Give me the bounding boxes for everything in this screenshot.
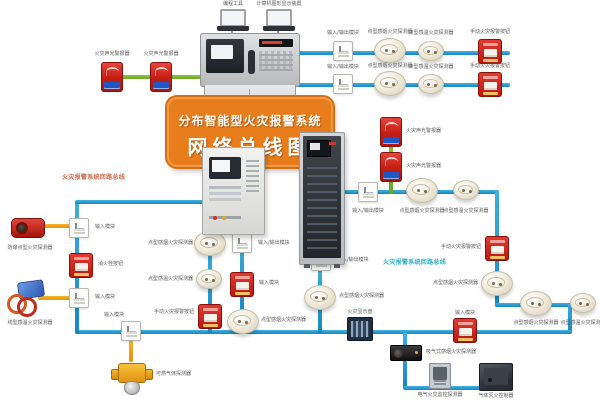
console-led-display xyxy=(259,39,293,47)
smoke-detector-bus-b-label: 点型感烟火灾探测器 xyxy=(513,321,558,327)
heat-detector-bus-a-icon xyxy=(453,180,479,200)
heat-detector-row2-icon xyxy=(418,74,444,94)
io-module-bus-a-icon xyxy=(358,182,378,202)
input-module-gas-branch-label: 输入模块 xyxy=(104,313,124,319)
sound-light-alarm-3-label: 火灾声光警报器 xyxy=(406,129,441,135)
heat-detector-bus-b-label: 点型感温火灾探测器 xyxy=(560,321,600,327)
sound-light-alarm-4-label: 火灾声光警报器 xyxy=(406,164,441,170)
smoke-detector-row2-label: 点型感烟火灾探测器 xyxy=(367,64,412,70)
manual-call-point-left-drop-icon xyxy=(198,304,222,329)
input-module-gas-branch-icon xyxy=(121,321,141,341)
manual-call-point-right-icon xyxy=(485,236,509,261)
smoke-detector-row1-label: 点型感烟火灾探测器 xyxy=(367,30,412,36)
io-module-row2-icon xyxy=(333,74,353,94)
panel-keypad xyxy=(246,158,259,192)
hydrant-button-label: 消火栓按钮 xyxy=(98,262,123,268)
smoke-detector-cabinet-drop-label: 点型感烟火灾探测器 xyxy=(339,294,384,300)
smoke-detector-right-drop-label: 点型感烟火灾探测器 xyxy=(261,318,306,324)
input-module-left-2-icon xyxy=(69,288,89,308)
smoke-detector-right-label: 点型感烟火灾探测器 xyxy=(433,281,478,287)
heat-detector-bus-a-label: 点型感温火灾探测器 xyxy=(443,209,488,215)
combustible-gas-detector-label: 可燃气体探测器 xyxy=(156,372,191,378)
linear-heat-detector-icon xyxy=(6,281,46,315)
heat-detector-row1-icon xyxy=(418,41,444,61)
io-module-right-drop-icon xyxy=(232,233,252,253)
hydrant-button-icon xyxy=(69,253,93,278)
manual-call-point-left-drop-label: 手动火灾报警按钮 xyxy=(154,310,194,316)
smoke-detector-bus-a-label: 点型感烟火灾探测器 xyxy=(399,209,444,215)
right-loop-bus-label: 火灾报警系统回路总线 xyxy=(383,257,446,266)
cabinet-slots xyxy=(307,161,337,249)
system-title: 分布智能型火灾报警系统 xyxy=(169,112,331,129)
aspirating-smoke-detector-icon xyxy=(390,345,422,361)
smoke-detector-right-icon xyxy=(481,271,513,296)
sound-light-alarm-4-icon xyxy=(380,152,402,182)
console-phone-handset xyxy=(248,50,255,74)
heat-detector-row2-label: 点型感温火灾探测器 xyxy=(408,65,453,71)
aspirating-smoke-detector-label: 吸气式感烟火灾探测器 xyxy=(426,350,476,356)
sound-light-alarm-3-icon xyxy=(380,117,402,147)
smoke-detector-right-drop-icon xyxy=(227,309,259,334)
io-module-row1-label: 输入/输出模块 xyxy=(327,31,359,37)
sound-light-alarm-2-label: 火灾声光警报器 xyxy=(143,52,178,58)
input-module-bottom-icon xyxy=(453,318,477,343)
programming-laptop-label: 编程工具 xyxy=(223,2,243,8)
console-screen xyxy=(206,39,244,73)
console-keypad xyxy=(259,51,293,71)
bus-line xyxy=(75,330,572,334)
combustible-gas-detector-icon xyxy=(111,357,151,393)
manual-call-point-right-label: 手动火灾报警按钮 xyxy=(441,245,481,251)
cabinet-screen xyxy=(307,140,331,157)
network-controller-cabinet xyxy=(299,132,345,265)
explosion-proof-detector-label: 防爆点型火灾探测器 xyxy=(7,246,52,252)
bus-line xyxy=(75,200,203,204)
input-module-right-drop-label: 输入模块 xyxy=(259,281,279,287)
cabinet-led xyxy=(329,142,336,145)
sound-light-alarm-1-icon xyxy=(101,62,123,92)
smoke-detector-row1-icon xyxy=(374,38,406,63)
io-module-row1-icon xyxy=(333,41,353,61)
fire-alarm-network-diagram: 分布智能型火灾报警系统 网络总线图 火灾报警系统回路总线 火灾报警系统回路总线 … xyxy=(0,0,600,400)
fire-display-panel-icon xyxy=(347,317,373,341)
manual-call-point-row1-label: 手动火灾报警按钮 xyxy=(470,30,510,36)
input-module-bottom-label: 输入模块 xyxy=(455,311,475,317)
cable-coil xyxy=(17,297,37,317)
manual-call-point-row2-icon xyxy=(478,72,502,97)
panel-indicators xyxy=(209,186,241,189)
gas-extinguishing-controller-label: 气体灭火控制器 xyxy=(478,394,513,400)
sound-light-alarm-1-label: 火灾声光警报器 xyxy=(94,52,129,58)
gas-detector-dome xyxy=(124,381,140,395)
manual-call-point-row1-icon xyxy=(478,39,502,64)
gas-extinguishing-controller-icon xyxy=(479,363,513,391)
smoke-detector-left-drop-label: 点型感烟火灾探测器 xyxy=(148,241,193,247)
fire-alarm-control-panel xyxy=(202,147,265,235)
graphics-display-laptop-icon xyxy=(266,9,292,27)
smoke-detector-cabinet-drop-icon xyxy=(304,285,336,310)
input-module-left-2-label: 输入模块 xyxy=(95,295,115,301)
electrical-fire-monitor-icon xyxy=(429,363,451,389)
electrical-fire-monitor-label: 电气火灾监控探测器 xyxy=(417,393,462,399)
input-module-left-1-icon xyxy=(69,218,89,238)
io-module-right-drop-label: 输入/输出模块 xyxy=(258,241,290,247)
heat-detector-bus-b-icon xyxy=(570,293,596,313)
smoke-detector-row2-icon xyxy=(374,71,406,96)
smoke-detector-bus-b-icon xyxy=(520,291,552,316)
explosion-proof-detector-icon xyxy=(9,212,47,240)
detector-branch-line xyxy=(44,224,70,228)
heat-detector-left-drop-label: 点型感温火灾探测器 xyxy=(148,277,193,283)
graphics-display-laptop-label: 计算机图形显示装置 xyxy=(256,2,301,8)
input-module-right-drop-icon xyxy=(230,272,254,297)
gas-detector-body xyxy=(118,363,146,383)
heat-detector-left-drop-icon xyxy=(196,269,222,289)
panel-screen xyxy=(209,157,241,179)
io-module-bus-a-label: 输入/输出模块 xyxy=(352,209,384,215)
smoke-detector-bus-a-icon xyxy=(406,178,438,203)
programming-laptop-icon xyxy=(220,9,246,27)
manual-call-point-row2-label: 手动火灾报警按钮 xyxy=(470,64,510,70)
fire-display-panel-label: 火灾显示盘 xyxy=(347,310,372,316)
linear-heat-detector-label: 线型感温火灾探测器 xyxy=(7,321,52,327)
left-loop-bus-label: 火灾报警系统回路总线 xyxy=(62,172,125,181)
sound-light-alarm-2-icon xyxy=(150,62,172,92)
input-module-left-1-label: 输入模块 xyxy=(95,225,115,231)
heat-detector-row1-label: 点型感温火灾探测器 xyxy=(408,31,453,37)
io-module-row2-label: 输入/输出模块 xyxy=(327,65,359,71)
console-monitor xyxy=(200,33,300,87)
